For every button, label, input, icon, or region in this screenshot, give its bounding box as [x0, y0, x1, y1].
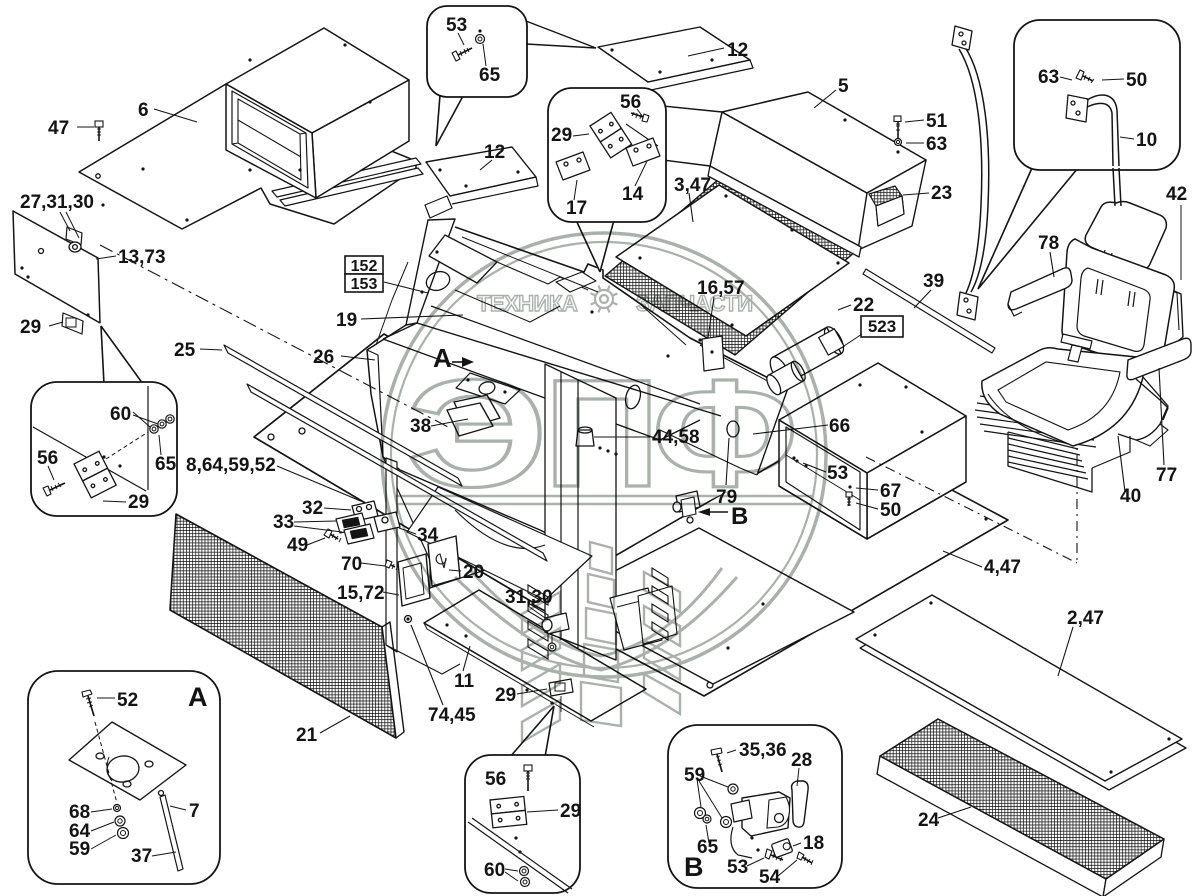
svg-text:7: 7	[189, 801, 200, 822]
svg-text:6: 6	[138, 100, 149, 121]
svg-text:31,30: 31,30	[505, 587, 553, 608]
svg-text:ЗАПЧАСТИ: ЗАПЧАСТИ	[636, 291, 753, 316]
svg-text:66: 66	[829, 416, 850, 437]
svg-text:24: 24	[918, 810, 940, 831]
svg-text:A: A	[188, 682, 208, 712]
svg-text:39: 39	[923, 271, 944, 292]
svg-text:19: 19	[336, 310, 357, 331]
svg-text:ТЕХНИКА: ТЕХНИКА	[477, 291, 578, 316]
svg-text:22: 22	[853, 295, 874, 316]
svg-text:40: 40	[1120, 486, 1141, 507]
svg-text:60: 60	[110, 404, 131, 425]
svg-text:27,31,30: 27,31,30	[20, 192, 94, 213]
svg-text:56: 56	[37, 448, 58, 469]
svg-text:12: 12	[484, 142, 505, 163]
svg-text:2,47: 2,47	[1067, 608, 1104, 629]
svg-text:59: 59	[69, 839, 90, 860]
svg-text:70: 70	[341, 554, 362, 575]
svg-text:65: 65	[155, 454, 177, 475]
svg-text:25: 25	[174, 340, 196, 361]
svg-text:78: 78	[1038, 233, 1059, 254]
svg-text:63: 63	[1038, 67, 1059, 88]
svg-text:10: 10	[1136, 130, 1157, 151]
svg-text:8,64,59,52: 8,64,59,52	[186, 455, 276, 476]
svg-text:23: 23	[931, 183, 952, 204]
svg-text:Ф: Ф	[652, 348, 798, 518]
svg-text:32: 32	[302, 498, 323, 519]
svg-text:152: 152	[351, 258, 378, 275]
svg-text:26: 26	[313, 347, 334, 368]
svg-text:17: 17	[566, 198, 587, 219]
svg-text:29: 29	[20, 317, 41, 338]
svg-text:4,47: 4,47	[984, 557, 1021, 578]
svg-text:67: 67	[880, 481, 901, 502]
svg-text:49: 49	[287, 535, 308, 556]
svg-text:53: 53	[827, 463, 848, 484]
svg-text:П: П	[544, 348, 659, 519]
svg-text:12: 12	[727, 40, 748, 61]
svg-text:53: 53	[727, 857, 748, 878]
svg-text:3,47: 3,47	[674, 175, 711, 196]
svg-text:59: 59	[684, 765, 705, 786]
svg-text:11: 11	[454, 671, 475, 692]
svg-text:77: 77	[1156, 465, 1177, 486]
svg-text:63: 63	[926, 134, 947, 155]
svg-text:29: 29	[560, 801, 581, 822]
svg-text:60: 60	[484, 860, 505, 881]
svg-text:28: 28	[791, 750, 812, 771]
svg-text:29: 29	[128, 492, 149, 513]
svg-text:153: 153	[351, 276, 378, 293]
svg-text:14: 14	[622, 184, 644, 205]
svg-text:18: 18	[803, 833, 824, 854]
svg-text:68: 68	[69, 802, 90, 823]
svg-text:35,36: 35,36	[739, 740, 787, 761]
svg-text:Э: Э	[406, 347, 548, 519]
svg-text:29: 29	[495, 685, 516, 706]
svg-text:53: 53	[446, 15, 467, 36]
svg-text:54: 54	[759, 867, 781, 888]
svg-text:29: 29	[551, 125, 572, 146]
svg-text:65: 65	[697, 837, 719, 858]
svg-text:33: 33	[273, 512, 294, 533]
svg-text:52: 52	[117, 690, 138, 711]
svg-text:523: 523	[868, 317, 896, 336]
svg-text:47: 47	[48, 118, 69, 139]
svg-text:21: 21	[296, 725, 318, 746]
svg-text:34: 34	[417, 525, 439, 546]
svg-text:5: 5	[838, 76, 849, 97]
svg-text:13,73: 13,73	[118, 247, 166, 268]
svg-text:37: 37	[131, 846, 152, 867]
svg-text:50: 50	[880, 500, 901, 521]
svg-text:56: 56	[485, 769, 506, 790]
svg-text:51: 51	[926, 111, 948, 132]
svg-text:74,45: 74,45	[428, 705, 476, 726]
svg-text:15,72: 15,72	[337, 583, 385, 604]
svg-text:42: 42	[1166, 184, 1187, 205]
svg-text:65: 65	[479, 65, 501, 86]
svg-text:50: 50	[1126, 70, 1147, 91]
